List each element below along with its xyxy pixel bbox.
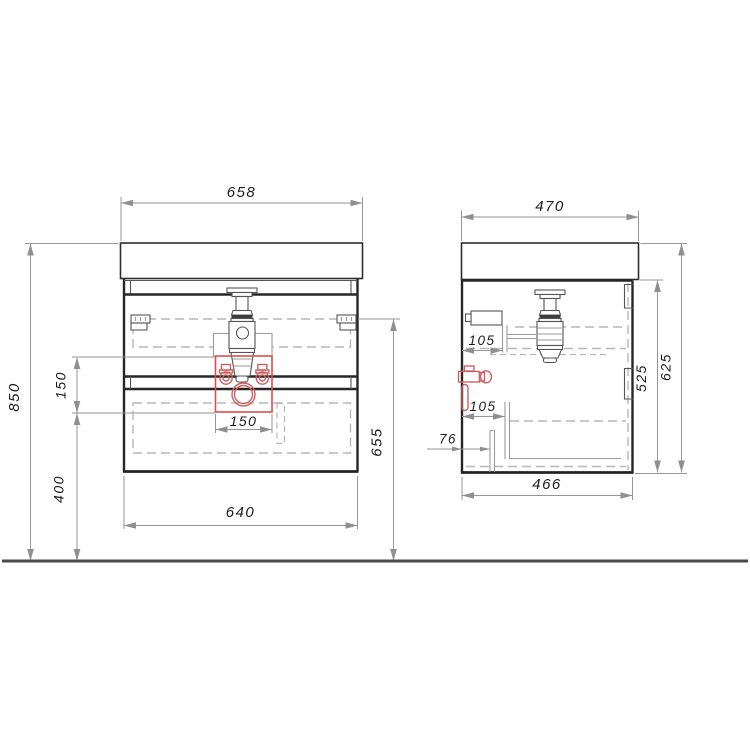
dim-side-top-depth: 470 [535, 198, 565, 215]
dim-front-bottom-clearance: 400 [51, 475, 67, 503]
drain-hole-icon [232, 383, 255, 406]
water-valve-left-icon [220, 365, 233, 385]
drawer-plumbing-notch [277, 404, 285, 444]
dim-side-drain-offset: 76 [439, 432, 457, 447]
vanity-dimension-drawing: 658 850 150 400 150 640 655 [0, 0, 750, 750]
dim-side-inlet-offset-upper: 105 [468, 333, 495, 348]
technical-drawing: 658 850 150 400 150 640 655 [0, 0, 750, 750]
dim-side-cabinet-height: 525 [633, 364, 649, 392]
siphon-trap-front [227, 288, 257, 382]
dim-front-cabinet-width: 640 [226, 504, 256, 521]
siphon-trap-side [535, 290, 565, 363]
mounting-bracket-right [337, 315, 356, 330]
dim-front-mount-height: 655 [369, 427, 386, 457]
dim-side-total-height: 625 [658, 353, 674, 381]
dim-side-inlet-offset-lower: 105 [469, 399, 496, 414]
dim-side-cabinet-depth: 466 [532, 476, 562, 493]
front-view-dimensions: 658 850 150 400 150 640 655 [6, 184, 400, 561]
drain-pipe-chase [490, 402, 621, 472]
dim-front-width-top: 658 [227, 184, 257, 201]
dim-front-valve-zone-width: 150 [230, 413, 258, 429]
dim-front-valve-zone-height: 150 [53, 371, 69, 399]
dim-front-total-height: 850 [6, 382, 23, 412]
mounting-bracket-left [131, 315, 150, 330]
countertop-side [462, 243, 639, 280]
countertop-front [121, 243, 363, 279]
water-inlet-box [466, 311, 503, 325]
water-valve-right-icon [256, 365, 269, 385]
side-view [459, 243, 639, 473]
